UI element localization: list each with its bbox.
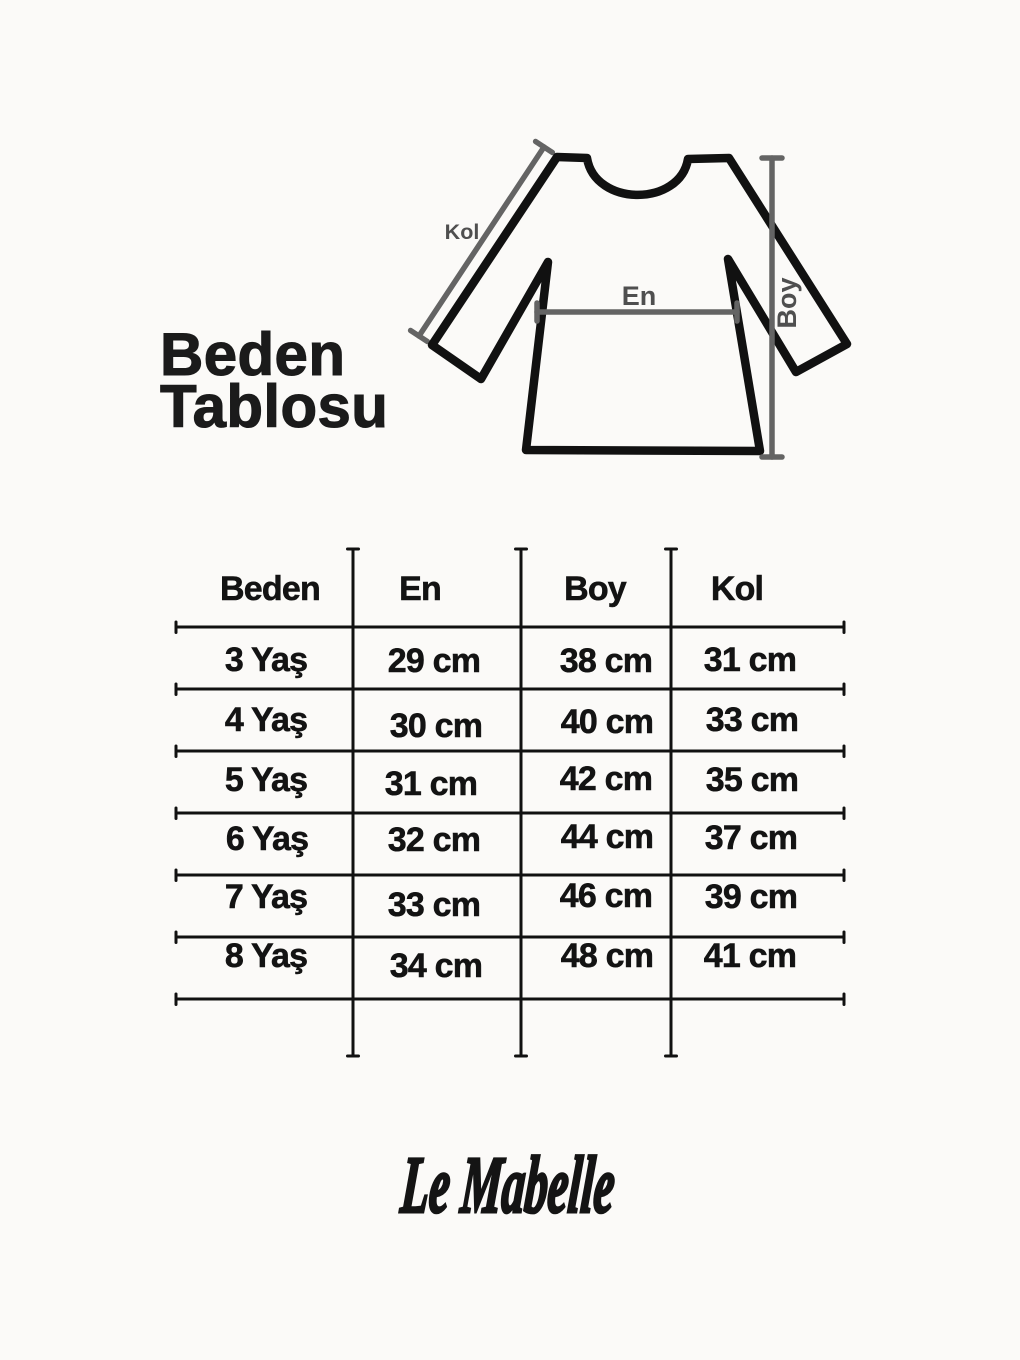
svg-text:En: En [622, 281, 657, 311]
svg-text:6 Yaş: 6 Yaş [226, 820, 308, 858]
svg-text:30 cm: 30 cm [390, 707, 482, 745]
svg-text:46 cm: 46 cm [560, 877, 652, 915]
svg-text:33 cm: 33 cm [388, 886, 480, 924]
svg-text:Tablosu: Tablosu [160, 373, 388, 440]
svg-text:41 cm: 41 cm [704, 937, 796, 975]
svg-text:42 cm: 42 cm [560, 760, 652, 798]
svg-text:35 cm: 35 cm [706, 761, 798, 799]
svg-text:Beden: Beden [220, 570, 320, 608]
svg-text:5 Yaş: 5 Yaş [225, 761, 307, 799]
svg-text:Le Mabelle: Le Mabelle [397, 1141, 618, 1231]
svg-text:33 cm: 33 cm [706, 701, 798, 739]
svg-text:48 cm: 48 cm [561, 937, 653, 975]
svg-text:32 cm: 32 cm [388, 821, 480, 859]
svg-text:7 Yaş: 7 Yaş [225, 878, 307, 916]
svg-text:44 cm: 44 cm [561, 818, 653, 856]
svg-text:38 cm: 38 cm [560, 642, 652, 680]
svg-text:31 cm: 31 cm [385, 765, 477, 803]
svg-text:31 cm: 31 cm [704, 641, 796, 679]
svg-text:3 Yaş: 3 Yaş [225, 641, 307, 679]
svg-text:37 cm: 37 cm [705, 819, 797, 857]
svg-text:29 cm: 29 cm [388, 642, 480, 680]
svg-text:En: En [399, 570, 441, 608]
svg-text:34 cm: 34 cm [390, 947, 482, 985]
svg-text:39 cm: 39 cm [705, 878, 797, 916]
svg-text:4 Yaş: 4 Yaş [225, 701, 307, 739]
svg-text:Boy: Boy [564, 570, 627, 608]
svg-text:Kol: Kol [445, 220, 480, 244]
svg-text:40 cm: 40 cm [561, 703, 653, 741]
svg-text:Boy: Boy [772, 277, 802, 328]
svg-text:8 Yaş: 8 Yaş [225, 937, 307, 975]
svg-text:Kol: Kol [711, 570, 763, 608]
